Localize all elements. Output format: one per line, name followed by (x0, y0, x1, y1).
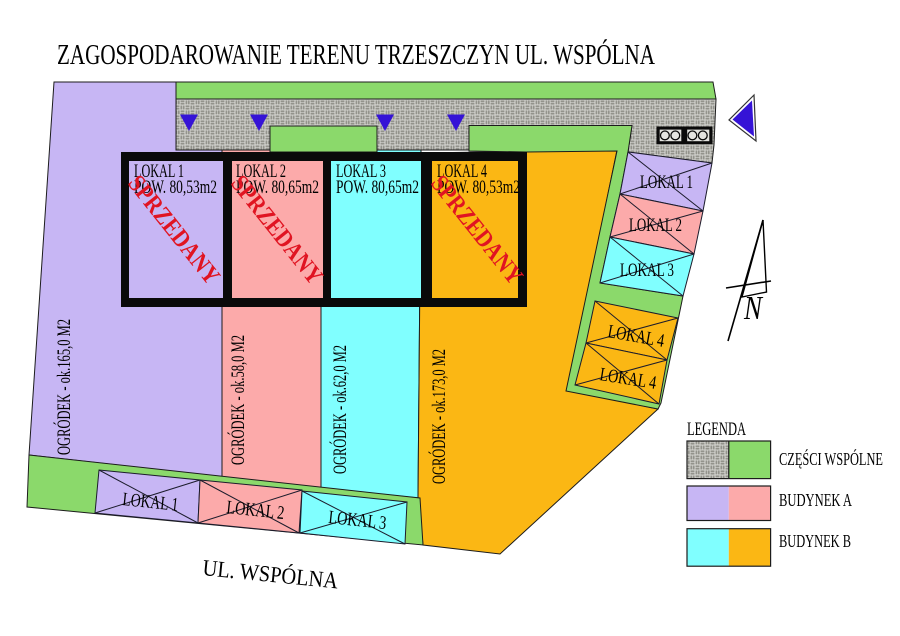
svg-text:BUDYNEK B: BUDYNEK B (779, 531, 851, 551)
svg-text:LOKAL 1: LOKAL 1 (640, 172, 693, 193)
svg-text:OGRÓDEK - ok.58,0 M2: OGRÓDEK - ok.58,0 M2 (227, 335, 249, 465)
svg-text:LEGENDA: LEGENDA (687, 420, 746, 440)
svg-text:OGRÓDEK - ok.62,0 M2: OGRÓDEK - ok.62,0 M2 (329, 345, 351, 474)
svg-text:OGRÓDEK - ok.165,0 M2: OGRÓDEK - ok.165,0 M2 (53, 319, 75, 455)
svg-text:POW. 80,65m2: POW. 80,65m2 (336, 177, 419, 198)
svg-text:ZAGOSPODAROWANIE TERENU TRZES: ZAGOSPODAROWANIE TERENU TRZESZCZYN UL. W… (57, 40, 656, 71)
svg-text:CZĘŚCI WSPÓLNE: CZĘŚCI WSPÓLNE (779, 449, 883, 469)
svg-text:N: N (743, 290, 764, 327)
svg-text:BUDYNEK A: BUDYNEK A (779, 490, 852, 510)
svg-text:LOKAL 2: LOKAL 2 (629, 215, 682, 236)
svg-text:LOKAL 3: LOKAL 3 (620, 260, 674, 281)
svg-text:UL. WSPÓLNA: UL. WSPÓLNA (202, 554, 340, 593)
svg-text:OGRÓDEK - ok.173,0 M2: OGRÓDEK - ok.173,0 M2 (428, 349, 450, 484)
